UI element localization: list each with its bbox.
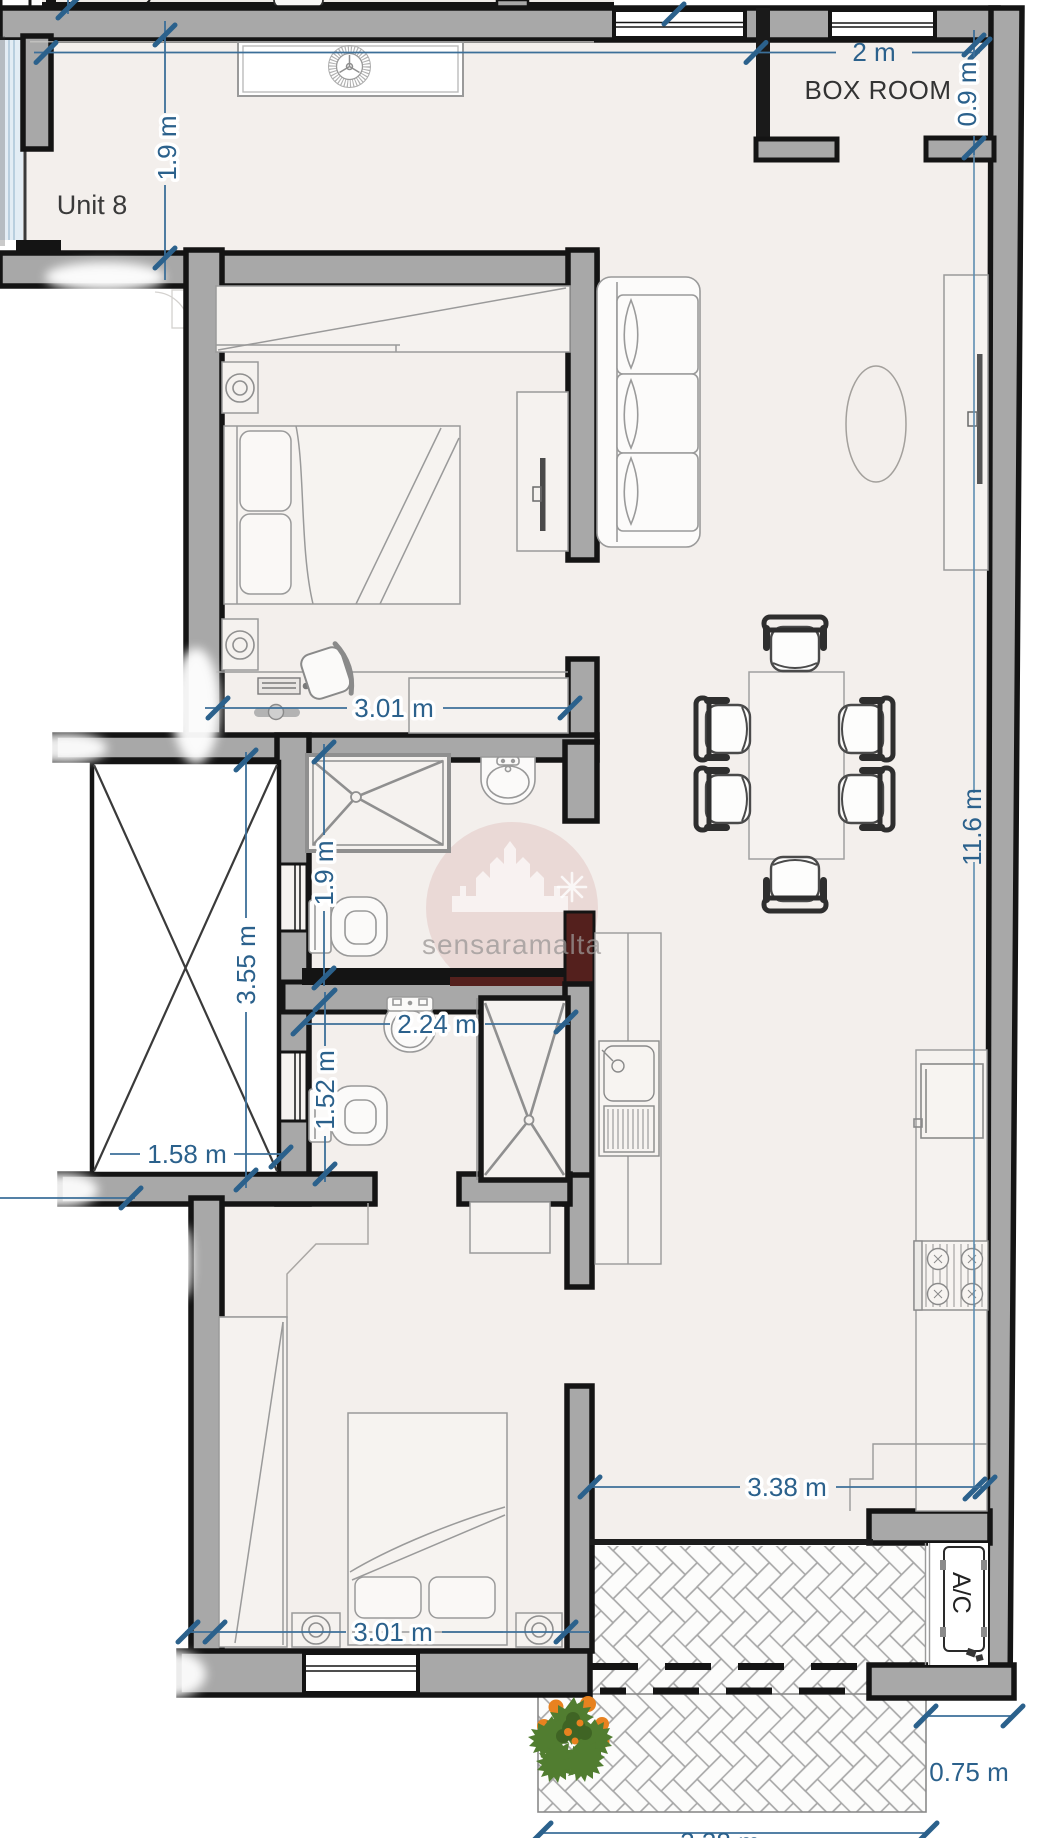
svg-text:11.6 m: 11.6 m [957,788,987,866]
svg-text:1.52 m: 1.52 m [310,1050,340,1130]
svg-text:A/C: A/C [947,1572,975,1614]
svg-text:1.58 m: 1.58 m [147,1139,227,1169]
svg-text:sensaramalta: sensaramalta [422,929,602,960]
svg-text:2.24 m: 2.24 m [397,1009,477,1039]
svg-text:3.38 m: 3.38 m [680,1827,760,1838]
svg-text:3.38 m: 3.38 m [747,1472,827,1502]
svg-text:0.9 m: 0.9 m [952,61,982,126]
svg-text:0.75 m: 0.75 m [929,1757,1009,1787]
svg-text:BOX ROOM: BOX ROOM [804,75,951,105]
svg-text:2 m: 2 m [852,37,895,67]
svg-text:3.01 m: 3.01 m [353,1617,433,1647]
svg-text:Unit 8: Unit 8 [57,190,128,220]
svg-text:1.9 m: 1.9 m [309,840,339,905]
svg-text:3.01 m: 3.01 m [354,693,434,723]
svg-text:3.55 m: 3.55 m [231,925,261,1005]
svg-text:1.9 m: 1.9 m [152,115,182,180]
